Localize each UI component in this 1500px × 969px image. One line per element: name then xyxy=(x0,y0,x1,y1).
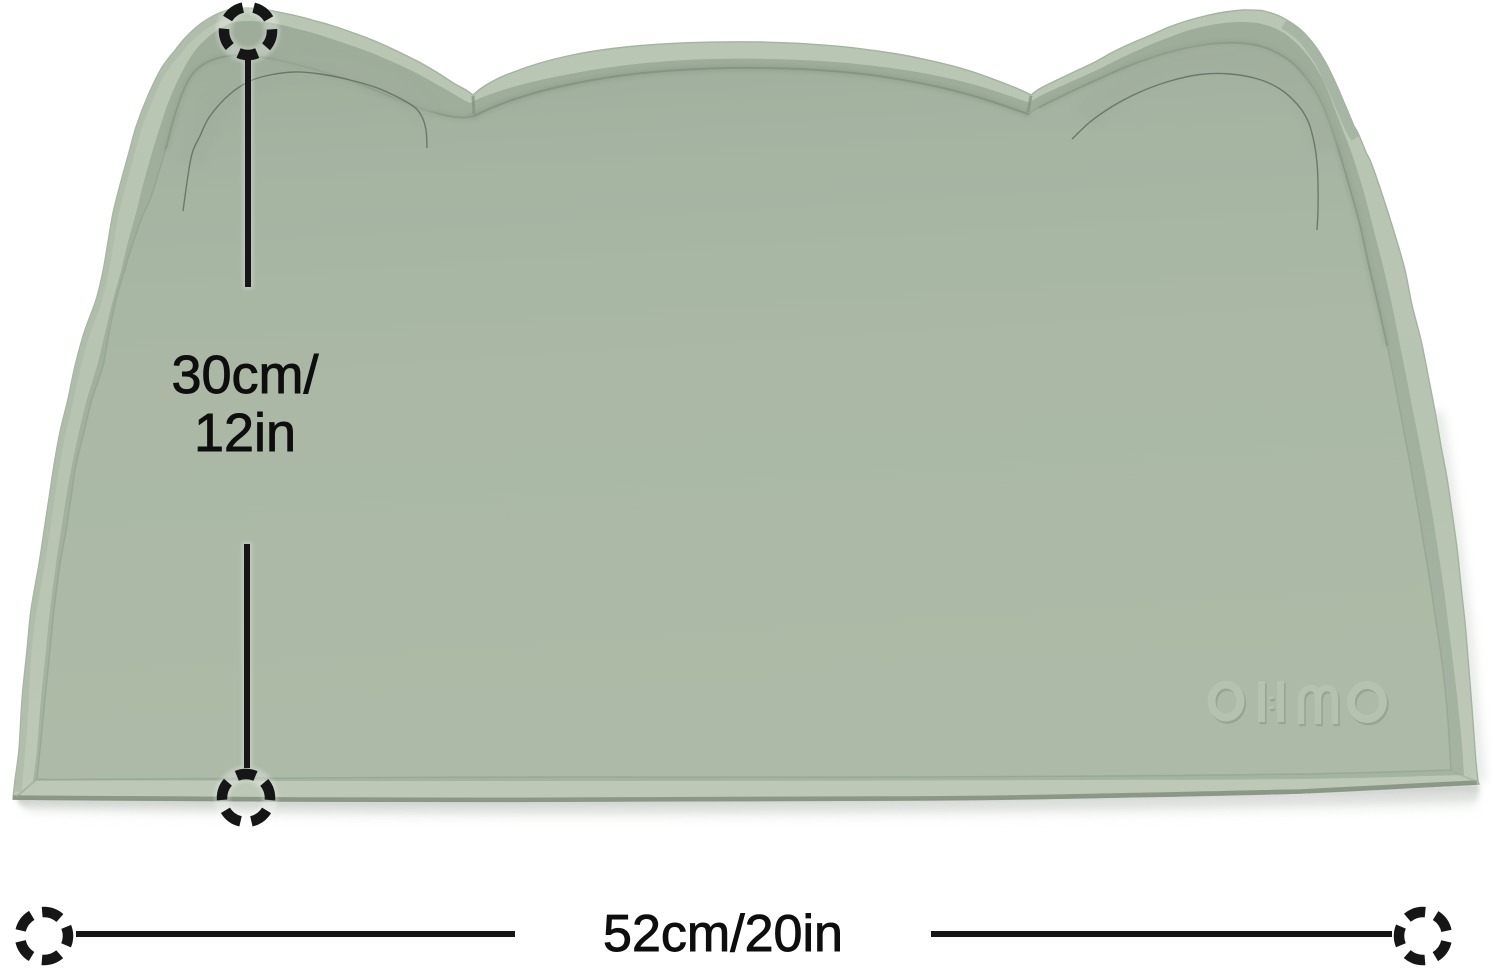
svg-text:52cm/20in: 52cm/20in xyxy=(603,905,843,963)
svg-text:12in: 12in xyxy=(194,403,296,463)
svg-text:30cm/: 30cm/ xyxy=(171,345,318,405)
